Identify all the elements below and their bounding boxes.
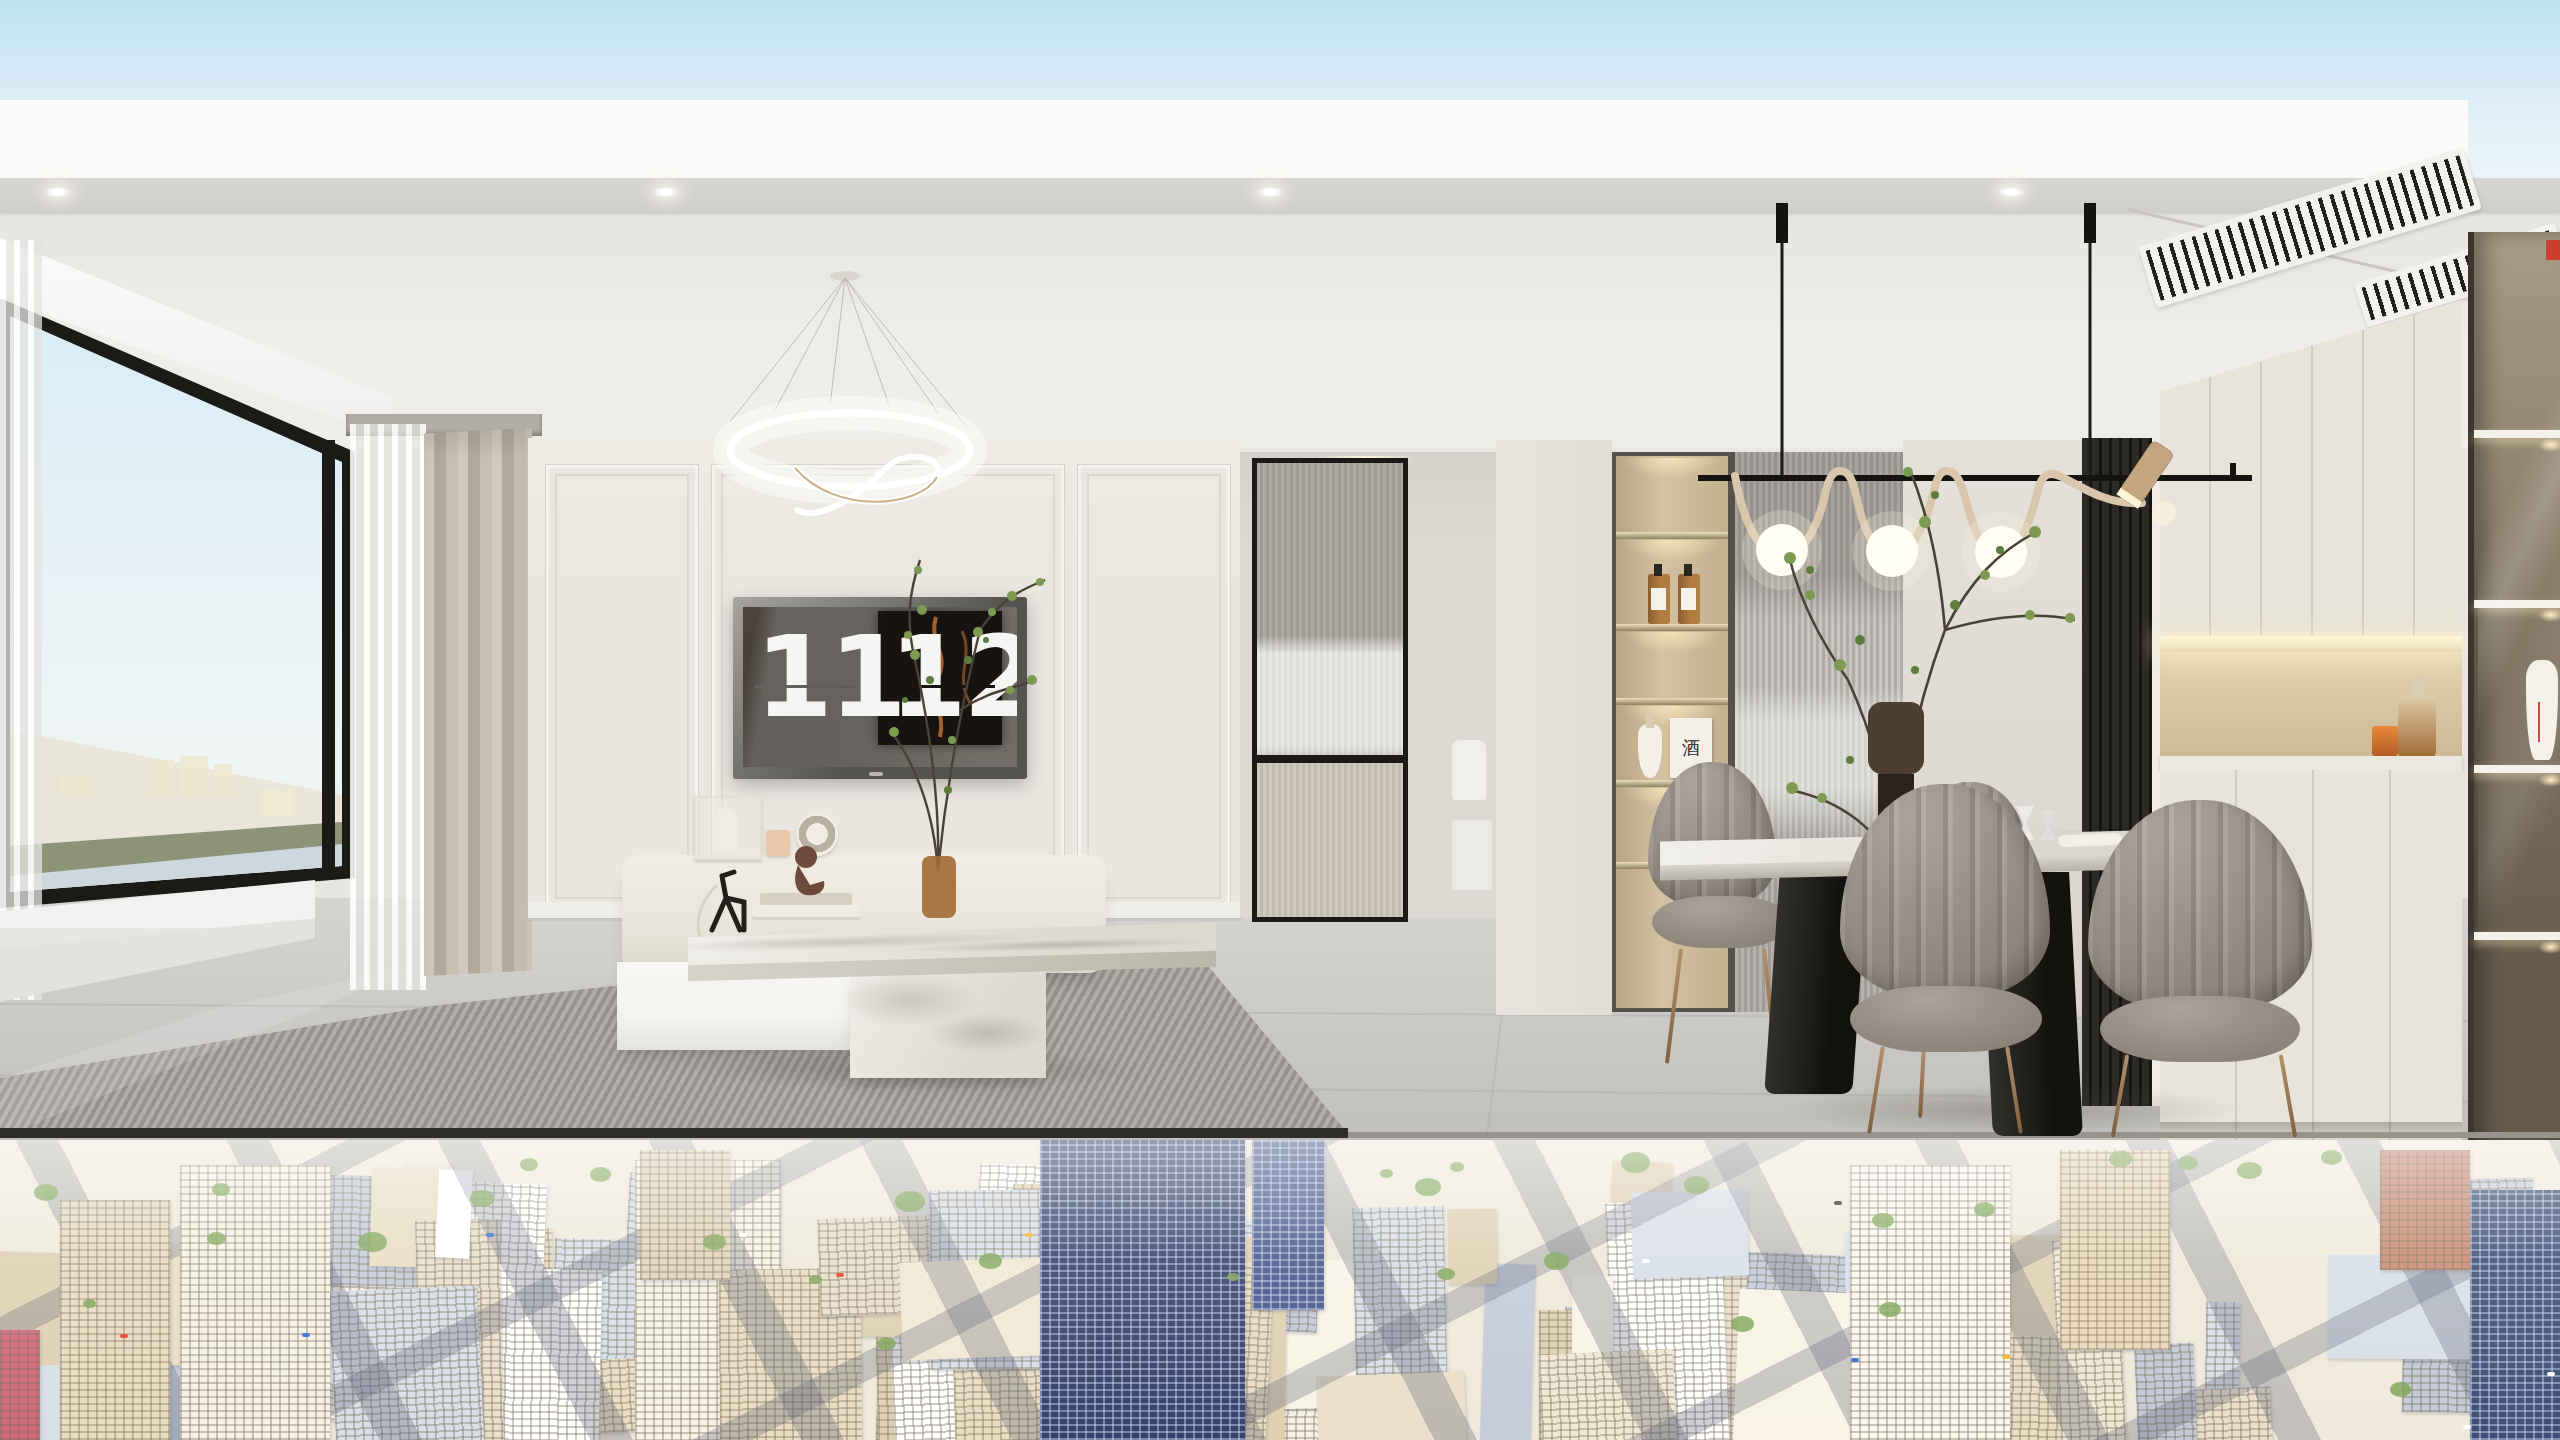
wall-molding bbox=[1078, 465, 1230, 908]
table-tray bbox=[2058, 833, 2122, 847]
tree-vase bbox=[1868, 702, 1924, 774]
amber-vase bbox=[922, 856, 956, 918]
chair-seat bbox=[1652, 896, 1790, 948]
city-haze bbox=[0, 1140, 2560, 1440]
downlight bbox=[653, 186, 679, 198]
chair-seat bbox=[1850, 986, 2042, 1052]
ring-chandelier bbox=[700, 260, 1000, 550]
shelf-board bbox=[1616, 624, 1728, 631]
ceramic-cork bbox=[1646, 714, 1654, 728]
books-stack bbox=[752, 905, 860, 917]
curtain bbox=[424, 428, 532, 976]
decanter bbox=[2398, 696, 2436, 758]
sheer-curtain-left bbox=[0, 240, 42, 1000]
sky-band bbox=[0, 0, 2560, 100]
shelf-light bbox=[1620, 632, 1724, 658]
white-band bbox=[0, 100, 2468, 178]
niche-led-strip bbox=[2160, 636, 2462, 652]
glass-door bbox=[1252, 458, 1408, 922]
tree-leaves bbox=[1784, 467, 2075, 803]
bathroom-fixture bbox=[1452, 740, 1486, 800]
bottle-label bbox=[1651, 588, 1666, 610]
downlight bbox=[1257, 186, 1283, 198]
sky-corner bbox=[2466, 98, 2560, 180]
decanter-stopper bbox=[2412, 676, 2424, 698]
coffee-table-plant bbox=[860, 540, 1090, 930]
bust-sculpture bbox=[714, 808, 738, 854]
marble-table-base bbox=[850, 966, 1046, 1078]
gift-box-character: 酒 bbox=[1682, 736, 1700, 760]
niche-counter bbox=[2160, 756, 2462, 770]
wall-pillar bbox=[1496, 440, 1612, 1015]
interior-render: 酒 bbox=[0, 0, 2560, 1440]
ceramic-bottle bbox=[1638, 724, 1662, 778]
shelf-board bbox=[1616, 698, 1728, 705]
downlight bbox=[45, 186, 71, 198]
orange-glass bbox=[2372, 726, 2398, 756]
rug-edge bbox=[0, 1128, 1348, 1138]
door-handle-rail bbox=[1257, 755, 1403, 763]
sheer-curtain bbox=[350, 424, 426, 990]
bathroom-cabinet bbox=[1452, 820, 1492, 890]
wall-molding bbox=[546, 465, 698, 908]
sitting-figure bbox=[782, 845, 832, 905]
aerial-city-strip bbox=[0, 1140, 2560, 1440]
window-mullion bbox=[322, 440, 335, 876]
window bbox=[0, 290, 360, 960]
glass-reflection bbox=[2478, 232, 2560, 1140]
plant-branches bbox=[890, 560, 1045, 870]
chair-seat bbox=[2100, 996, 2300, 1062]
bottle-cap bbox=[1654, 564, 1662, 576]
